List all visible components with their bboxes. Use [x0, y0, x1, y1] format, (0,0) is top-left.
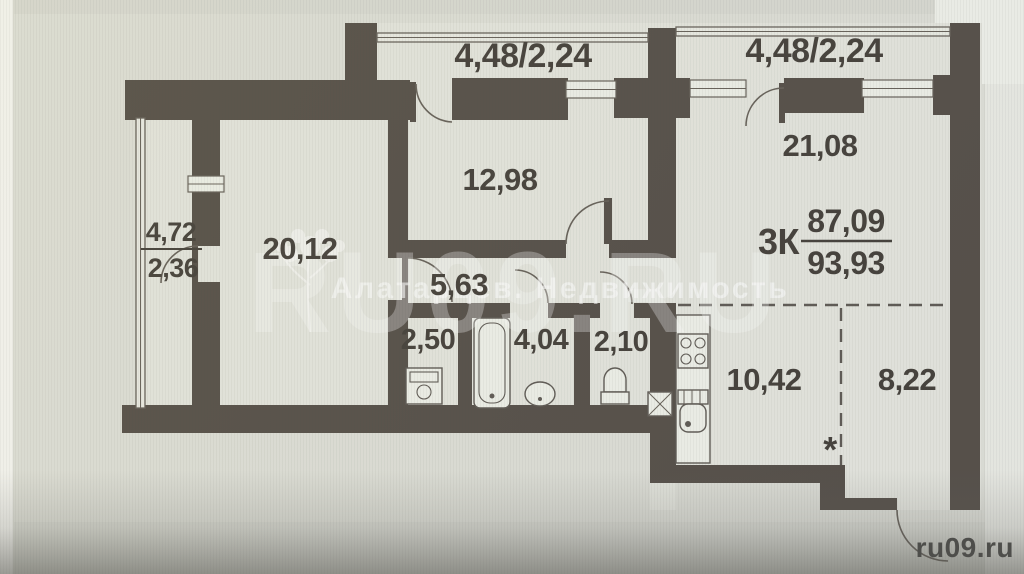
floor-plan-drawing: RU09.RU Алатарцев. Недвижимость 4,48/2,2… — [0, 0, 1024, 574]
photo-bottom-shadow — [0, 470, 1024, 574]
floor-plan-photo: RU09.RU Алатарцев. Недвижимость 4,48/2,2… — [0, 0, 1024, 574]
site-watermark: ru09.ru — [916, 532, 1014, 563]
